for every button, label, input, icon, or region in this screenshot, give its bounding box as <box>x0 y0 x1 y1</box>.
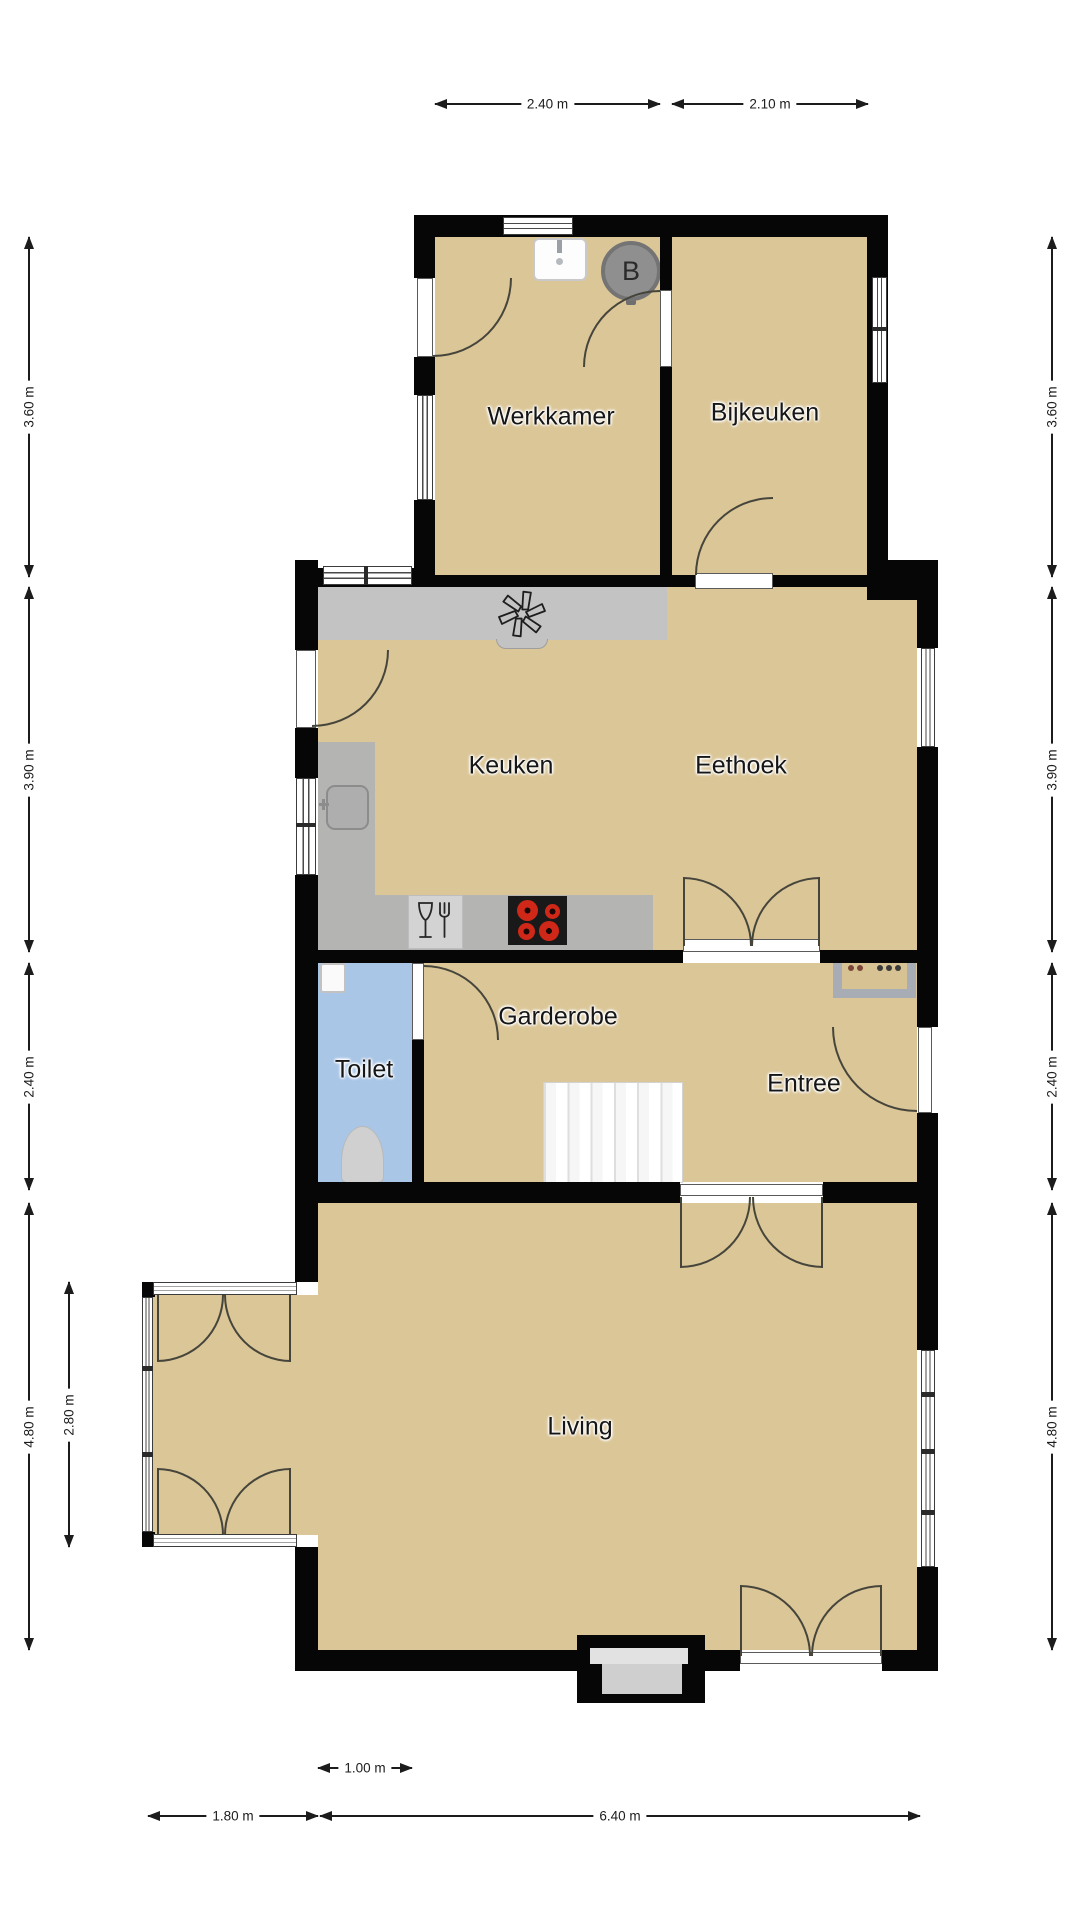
dimension-right-2: 3.90 m <box>1051 587 1053 952</box>
dimension-bottom-small: 1.00 m <box>318 1767 412 1769</box>
icon-overlay <box>0 0 1080 1920</box>
room-label-bijkeuken: Bijkeuken <box>711 399 819 428</box>
dimension-left-4: 4.80 m <box>28 1203 30 1650</box>
dimension-left-bay: 2.80 m <box>68 1282 70 1547</box>
dimension-top-bijkeuken: 2.10 m <box>672 103 868 105</box>
floorplan-canvas: B <box>0 0 1080 1920</box>
glass-fork-icon <box>419 903 449 937</box>
dimension-top-werkkamer: 2.40 m <box>435 103 660 105</box>
room-label-garderobe: Garderobe <box>498 1003 618 1032</box>
dimension-right-3: 2.40 m <box>1051 963 1053 1190</box>
room-label-keuken: Keuken <box>469 752 554 781</box>
room-label-living: Living <box>547 1413 612 1442</box>
dimension-left-3: 2.40 m <box>28 963 30 1190</box>
room-label-entree: Entree <box>767 1070 841 1099</box>
room-label-werkkamer: Werkkamer <box>487 403 614 432</box>
dimension-left-1: 3.60 m <box>28 237 30 577</box>
room-label-eethoek: Eethoek <box>695 752 787 781</box>
dimension-left-2: 3.90 m <box>28 587 30 952</box>
dimension-right-4: 4.80 m <box>1051 1203 1053 1650</box>
dimension-right-1: 3.60 m <box>1051 237 1053 577</box>
extractor-fan-icon <box>499 589 545 639</box>
dimension-bottom-main: 6.40 m <box>320 1815 920 1817</box>
room-label-toilet: Toilet <box>335 1056 393 1085</box>
dimension-bottom-bay: 1.80 m <box>148 1815 318 1817</box>
